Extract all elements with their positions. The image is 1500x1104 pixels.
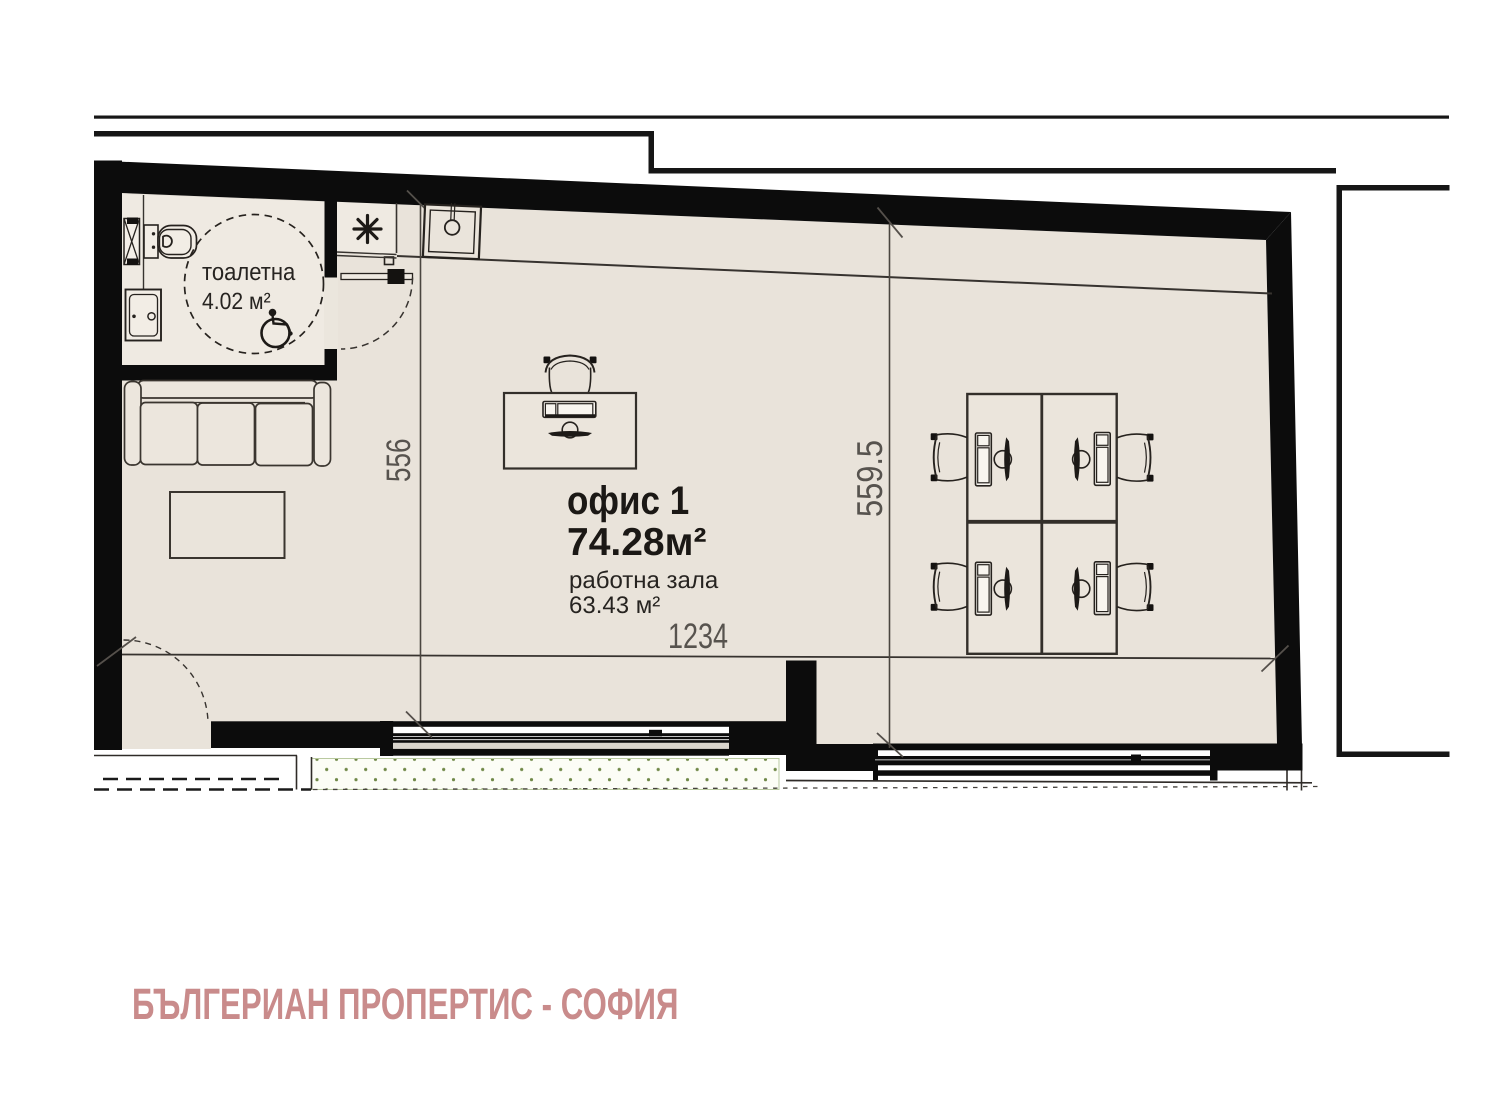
svg-text:74.28м²: 74.28м² (567, 521, 706, 564)
svg-text:тоалетна: тоалетна (202, 259, 296, 286)
svg-text:63.43 м²: 63.43 м² (569, 592, 660, 619)
svg-text:1234: 1234 (668, 616, 728, 656)
svg-text:БЪЛГЕРИАН ПРОПЕРТИС - СОФИЯ: БЪЛГЕРИАН ПРОПЕРТИС - СОФИЯ (132, 980, 678, 1029)
svg-text:559.5: 559.5 (849, 440, 890, 517)
svg-text:4.02 м²: 4.02 м² (202, 288, 271, 314)
svg-text:офис 1: офис 1 (567, 479, 689, 523)
svg-text:работна зала: работна зала (569, 567, 719, 594)
svg-text:556: 556 (380, 439, 418, 483)
